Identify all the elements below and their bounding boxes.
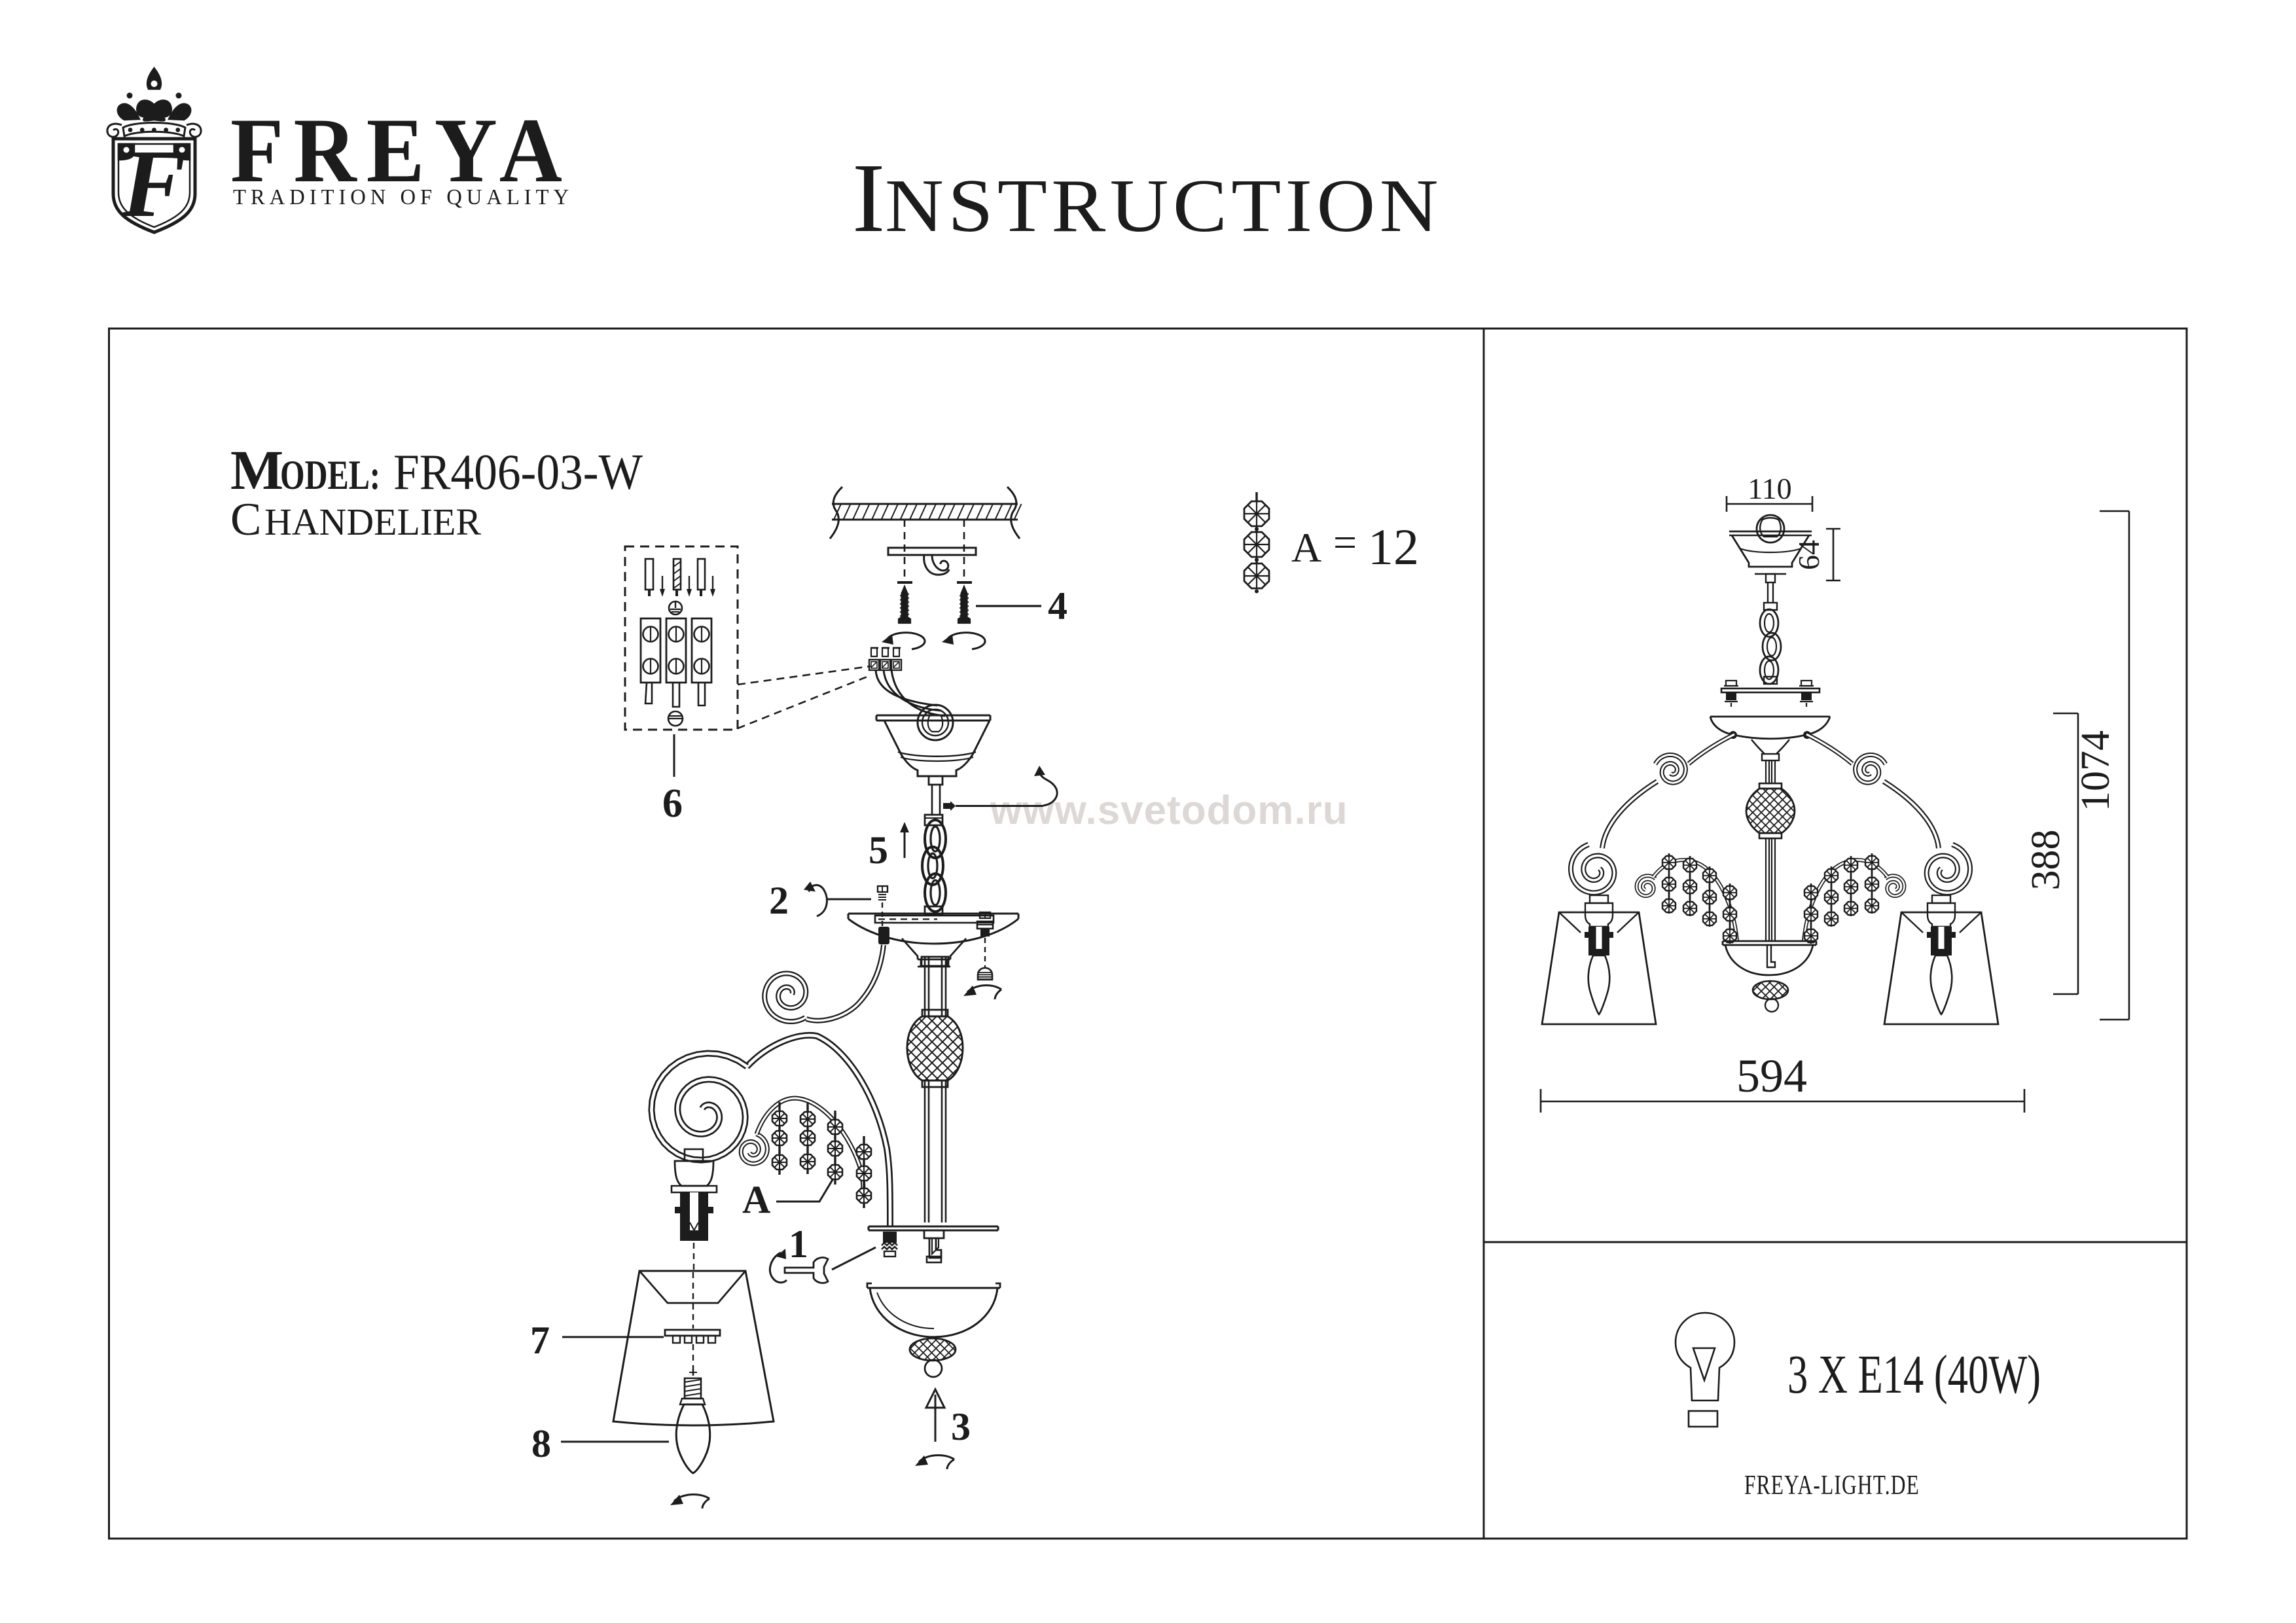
svg-text:12: 12	[1368, 518, 1419, 575]
svg-text:4: 4	[1048, 584, 1067, 628]
svg-text:FREYA-LIGHT.DE: FREYA-LIGHT.DE	[1744, 1471, 1920, 1501]
svg-text:5: 5	[869, 829, 888, 872]
svg-text:F: F	[121, 130, 187, 238]
svg-text:7: 7	[530, 1319, 550, 1362]
svg-text:3: 3	[951, 1405, 971, 1448]
svg-text:I: I	[852, 143, 885, 253]
svg-text:M: M	[230, 438, 283, 501]
svg-text:1074: 1074	[2073, 730, 2118, 811]
svg-text:HANDELIER: HANDELIER	[264, 501, 481, 543]
svg-text:3 X E14 (40W): 3 X E14 (40W)	[1787, 1344, 2041, 1405]
svg-text:ODEL:: ODEL:	[280, 452, 380, 498]
svg-text:388: 388	[2024, 830, 2068, 891]
svg-text:8: 8	[531, 1422, 551, 1465]
svg-text:NSTRUCTION: NSTRUCTION	[885, 164, 1443, 248]
svg-text:A: A	[742, 1178, 770, 1221]
svg-text:1: 1	[789, 1222, 808, 1266]
svg-text:www.svetodom.ru: www.svetodom.ru	[990, 788, 1348, 833]
svg-text:=: =	[1333, 519, 1357, 565]
svg-text:A: A	[1291, 524, 1321, 571]
svg-text:2: 2	[769, 879, 789, 922]
svg-text:TRADITION OF QUALITY: TRADITION OF QUALITY	[233, 185, 573, 209]
svg-text:FR406-03-W: FR406-03-W	[393, 444, 643, 500]
svg-text:C: C	[230, 494, 261, 545]
svg-text:6: 6	[662, 781, 683, 826]
svg-text:594: 594	[1736, 1050, 1807, 1102]
svg-text:64: 64	[1792, 540, 1825, 570]
svg-text:110: 110	[1748, 472, 1791, 505]
